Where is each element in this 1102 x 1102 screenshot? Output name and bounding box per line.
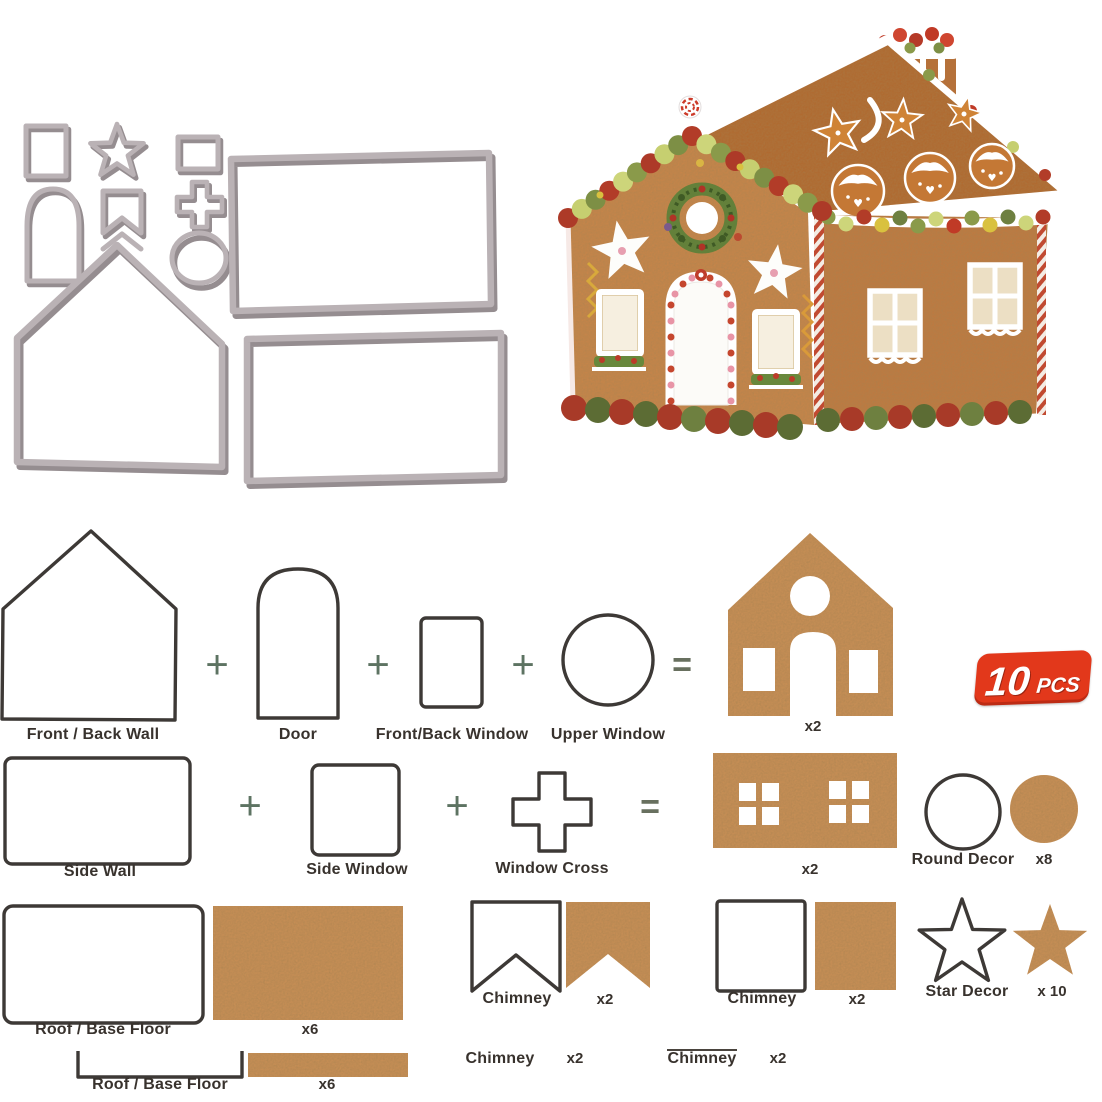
shape-side-window <box>312 765 399 855</box>
cutter-small-rect-2 <box>178 137 221 173</box>
roof-strip-count: x6 <box>319 1076 336 1093</box>
shape-star-decor <box>919 899 1005 980</box>
round-decor-cookie <box>1010 775 1078 843</box>
cutter-window-cross <box>177 182 225 231</box>
door-label: Door <box>279 726 317 743</box>
badge-unit: PCS <box>1035 672 1081 700</box>
front-window-1 <box>592 292 646 369</box>
plus-operator: + <box>445 784 468 828</box>
wreath <box>670 186 735 251</box>
shape-chimney-notched <box>472 902 560 991</box>
peppermint-candy <box>679 96 701 118</box>
cookie-cutters-photo <box>0 0 560 520</box>
equals-operator: = <box>672 646 692 684</box>
cutter-large-rect-2 <box>247 333 504 486</box>
shape-round-decor <box>926 775 1000 849</box>
shape-side-wall <box>5 758 190 864</box>
chimney-notched-count: x2 <box>597 991 614 1008</box>
badge-10pcs: 10 PCS <box>974 650 1093 706</box>
shape-front-back-wall <box>2 531 176 720</box>
shape-window-cross <box>513 773 591 851</box>
chimney-square-cookie <box>815 902 896 990</box>
product-image: ♥ ♥ ♥ <box>0 0 1102 1102</box>
house-side-wall <box>814 213 1048 425</box>
star-decor-cookie <box>1013 904 1087 975</box>
side-window-1 <box>870 291 920 362</box>
front-back-wall-label: Front / Back Wall <box>27 726 160 743</box>
svg-text:♥: ♥ <box>925 184 935 197</box>
roof-count: x6 <box>302 1021 319 1038</box>
cutter-star <box>90 124 146 178</box>
shape-door <box>258 569 338 718</box>
front-wall-count: x2 <box>805 718 822 735</box>
chimney-notched-label: Chimney <box>483 990 552 1007</box>
shapes-diagram: Front / Back Wall + Door + Front/Back Wi… <box>0 520 1102 1102</box>
chimney-square-count-2: x2 <box>770 1050 787 1067</box>
side-window-2 <box>970 265 1020 334</box>
chimney-notched-label-2: Chimney <box>466 1050 535 1067</box>
chimney-notched-cookie <box>566 902 650 988</box>
chimney-square-label-2: Chimney <box>668 1050 737 1067</box>
cutter-large-rect-1 <box>231 153 494 316</box>
roof-base-floor-label: Roof / Base Floor <box>35 1021 171 1038</box>
badge-count: 10 <box>984 662 1032 702</box>
window-cross-label: Window Cross <box>495 860 608 877</box>
result-front-wall-cookie <box>728 533 893 716</box>
front-back-window-label: Front/Back Window <box>376 726 529 743</box>
side-wall-count: x2 <box>802 861 819 878</box>
roof-bracket-label: Roof / Base Floor <box>92 1076 228 1093</box>
shape-upper-window <box>563 615 653 705</box>
svg-text:♥: ♥ <box>988 173 997 184</box>
chimney-square-count: x2 <box>849 991 866 1008</box>
plus-operator: + <box>511 643 534 687</box>
round-decor-label: Round Decor <box>912 851 1015 868</box>
upper-window-label: Upper Window <box>551 726 666 743</box>
plus-operator: + <box>205 643 228 687</box>
equals-operator: = <box>640 788 660 826</box>
shape-roof-base-floor <box>4 906 203 1023</box>
result-side-wall-cookie <box>713 753 897 848</box>
cutter-door-arch <box>27 189 82 285</box>
svg-text:♥: ♥ <box>853 197 863 210</box>
shape-chimney-square <box>717 901 805 991</box>
side-wall-label: Side Wall <box>64 863 136 880</box>
front-door <box>668 269 735 405</box>
cutter-small-rect-1 <box>26 126 69 180</box>
round-decor-count: x8 <box>1036 851 1053 868</box>
roof-strip-cookie <box>248 1053 408 1077</box>
shape-front-back-window <box>421 618 482 707</box>
gingerbread-house-photo: ♥ ♥ ♥ <box>540 5 1102 505</box>
side-window-label: Side Window <box>306 861 408 878</box>
cutter-chimney-pennant <box>103 191 144 249</box>
star-decor-count: x 10 <box>1037 983 1066 1000</box>
plus-operator: + <box>366 643 389 687</box>
roof-cookie <box>213 906 403 1020</box>
plus-operator: + <box>238 784 261 828</box>
star-decor-label: Star Decor <box>926 983 1009 1000</box>
cutter-circle <box>172 233 229 288</box>
front-window-2 <box>749 312 803 387</box>
chimney-notched-count-2: x2 <box>567 1050 584 1067</box>
shape-roof-bracket <box>78 1051 242 1077</box>
chimney-square-label: Chimney <box>728 990 797 1007</box>
